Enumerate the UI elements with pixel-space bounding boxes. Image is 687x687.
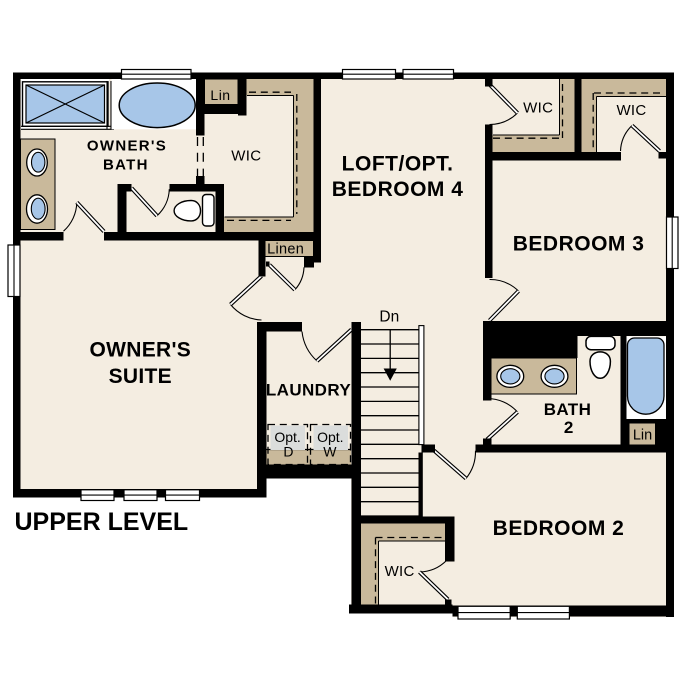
svg-text:WIC: WIC [523,99,553,116]
svg-text:WIC: WIC [616,102,646,119]
svg-text:BEDROOM 2: BEDROOM 2 [493,517,625,540]
svg-text:UPPER LEVEL: UPPER LEVEL [15,508,189,536]
svg-text:BATH: BATH [103,156,149,173]
svg-text:LAUNDRY: LAUNDRY [266,380,352,399]
svg-text:BATH: BATH [544,400,592,419]
svg-text:WIC: WIC [385,563,415,580]
svg-text:Lin: Lin [210,87,230,103]
svg-text:D: D [283,444,293,460]
svg-text:SUITE: SUITE [109,365,172,388]
svg-text:2: 2 [564,418,574,437]
svg-text:Lin: Lin [633,427,652,443]
svg-text:LOFT/OPT.: LOFT/OPT. [342,153,454,176]
svg-text:BEDROOM 3: BEDROOM 3 [513,233,645,256]
svg-text:W: W [323,444,337,460]
svg-text:OWNER'S: OWNER'S [90,339,192,362]
svg-text:OWNER'S: OWNER'S [87,138,167,155]
svg-text:BEDROOM 4: BEDROOM 4 [332,178,464,201]
svg-text:Dn: Dn [379,309,399,326]
svg-text:WIC: WIC [231,147,261,164]
svg-text:Linen: Linen [267,241,304,257]
